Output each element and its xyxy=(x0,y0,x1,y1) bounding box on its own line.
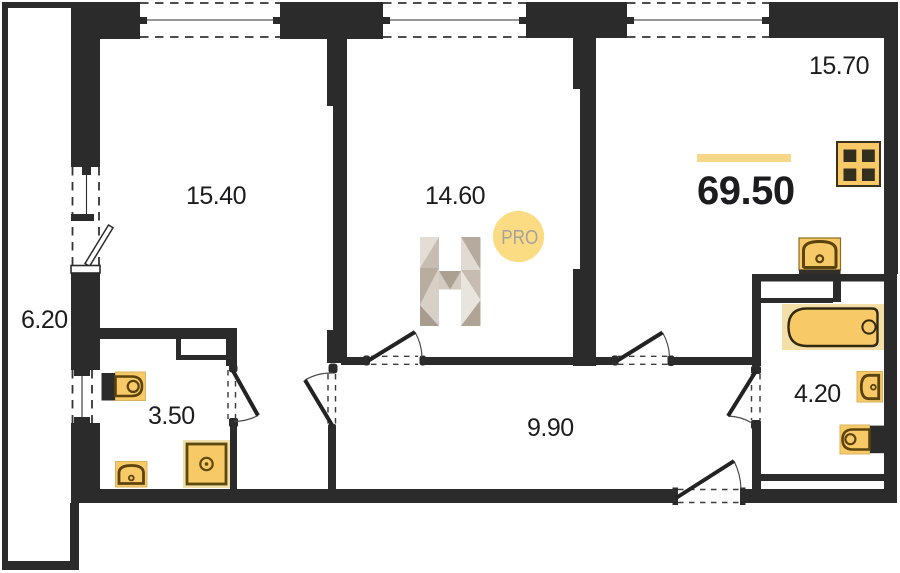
svg-text:9.90: 9.90 xyxy=(527,414,574,442)
svg-text:69.50: 69.50 xyxy=(697,169,795,213)
svg-text:14.60: 14.60 xyxy=(425,182,485,210)
svg-text:15.40: 15.40 xyxy=(186,182,246,210)
svg-text:4.20: 4.20 xyxy=(794,380,841,408)
svg-text:PRO: PRO xyxy=(501,226,538,249)
svg-text:6.20: 6.20 xyxy=(21,306,68,334)
svg-text:15.70: 15.70 xyxy=(809,52,869,80)
svg-text:3.50: 3.50 xyxy=(148,402,195,430)
